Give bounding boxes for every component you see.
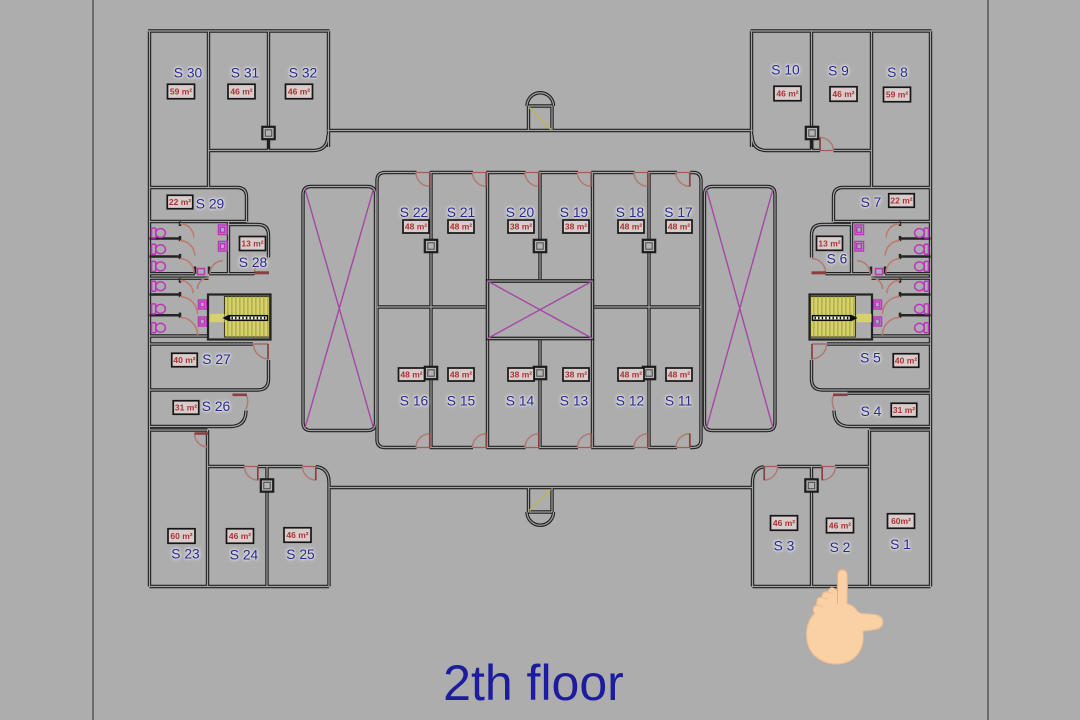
svg-text:S 12: S 12 <box>616 394 644 409</box>
svg-text:S 15: S 15 <box>447 394 476 409</box>
svg-text:S 19: S 19 <box>560 205 589 220</box>
svg-text:S 32: S 32 <box>289 66 317 81</box>
svg-text:31 m²: 31 m² <box>175 403 197 413</box>
svg-text:46 m²: 46 m² <box>288 87 310 97</box>
svg-text:S 31: S 31 <box>231 66 259 81</box>
svg-text:46 m²: 46 m² <box>829 521 851 531</box>
svg-text:38 m²: 38 m² <box>565 222 587 232</box>
svg-text:S 30: S 30 <box>174 66 203 81</box>
svg-text:S 5: S 5 <box>860 351 881 366</box>
svg-text:S 14: S 14 <box>506 394 535 409</box>
svg-text:S 10: S 10 <box>771 63 800 78</box>
svg-text:46 m²: 46 m² <box>773 518 795 528</box>
svg-text:48 m²: 48 m² <box>400 370 422 380</box>
svg-text:48 m²: 48 m² <box>450 370 472 380</box>
svg-text:S 16: S 16 <box>400 394 429 409</box>
svg-text:S 13: S 13 <box>560 394 589 409</box>
svg-text:48 m²: 48 m² <box>668 222 690 232</box>
svg-text:48 m²: 48 m² <box>450 222 472 232</box>
svg-text:38 m²: 38 m² <box>510 370 532 380</box>
svg-text:46 m²: 46 m² <box>286 530 308 540</box>
svg-text:59 m²: 59 m² <box>170 87 192 97</box>
svg-text:S 24: S 24 <box>230 548 259 563</box>
svg-text:13 m²: 13 m² <box>818 238 840 248</box>
svg-text:48 m²: 48 m² <box>405 222 427 232</box>
svg-text:40 m²: 40 m² <box>895 356 917 366</box>
svg-text:22 m²: 22 m² <box>890 196 912 206</box>
svg-text:S 27: S 27 <box>202 352 230 367</box>
svg-text:48 m²: 48 m² <box>620 222 642 232</box>
svg-text:S 11: S 11 <box>665 394 692 409</box>
svg-text:S 17: S 17 <box>664 205 692 220</box>
svg-text:S 21: S 21 <box>447 205 475 220</box>
svg-text:59 m²: 59 m² <box>886 90 908 100</box>
svg-text:S 20: S 20 <box>506 205 535 220</box>
svg-text:S 29: S 29 <box>196 197 225 212</box>
svg-text:S 1: S 1 <box>890 537 911 552</box>
svg-text:13 m²: 13 m² <box>241 239 263 249</box>
svg-text:38 m²: 38 m² <box>510 222 532 232</box>
svg-text:31 m²: 31 m² <box>893 405 915 415</box>
svg-text:S 28: S 28 <box>239 255 268 270</box>
svg-text:2th floor: 2th floor <box>443 655 624 711</box>
svg-text:60m²: 60m² <box>891 516 911 526</box>
svg-text:S 8: S 8 <box>887 65 908 80</box>
svg-text:S 23: S 23 <box>171 547 200 562</box>
svg-text:60 m²: 60 m² <box>170 531 192 541</box>
svg-text:46 m²: 46 m² <box>776 89 798 99</box>
svg-text:40 m²: 40 m² <box>173 355 195 365</box>
svg-text:S 2: S 2 <box>830 540 851 555</box>
svg-text:S 6: S 6 <box>827 252 848 267</box>
svg-text:S 18: S 18 <box>616 205 645 220</box>
svg-text:S 9: S 9 <box>828 64 849 79</box>
svg-text:S 22: S 22 <box>400 205 428 220</box>
svg-text:48 m²: 48 m² <box>620 370 642 380</box>
svg-text:S 7: S 7 <box>861 195 882 210</box>
svg-text:48 m²: 48 m² <box>668 370 690 380</box>
svg-text:S 4: S 4 <box>861 404 882 419</box>
svg-text:22 m²: 22 m² <box>169 197 191 207</box>
svg-text:S 3: S 3 <box>774 539 795 554</box>
svg-text:46 m²: 46 m² <box>230 87 252 97</box>
svg-text:S 25: S 25 <box>286 547 315 562</box>
svg-text:S 26: S 26 <box>202 399 231 414</box>
svg-text:38 m²: 38 m² <box>565 370 587 380</box>
svg-text:46 m²: 46 m² <box>832 89 854 99</box>
svg-text:46 m²: 46 m² <box>229 531 251 541</box>
